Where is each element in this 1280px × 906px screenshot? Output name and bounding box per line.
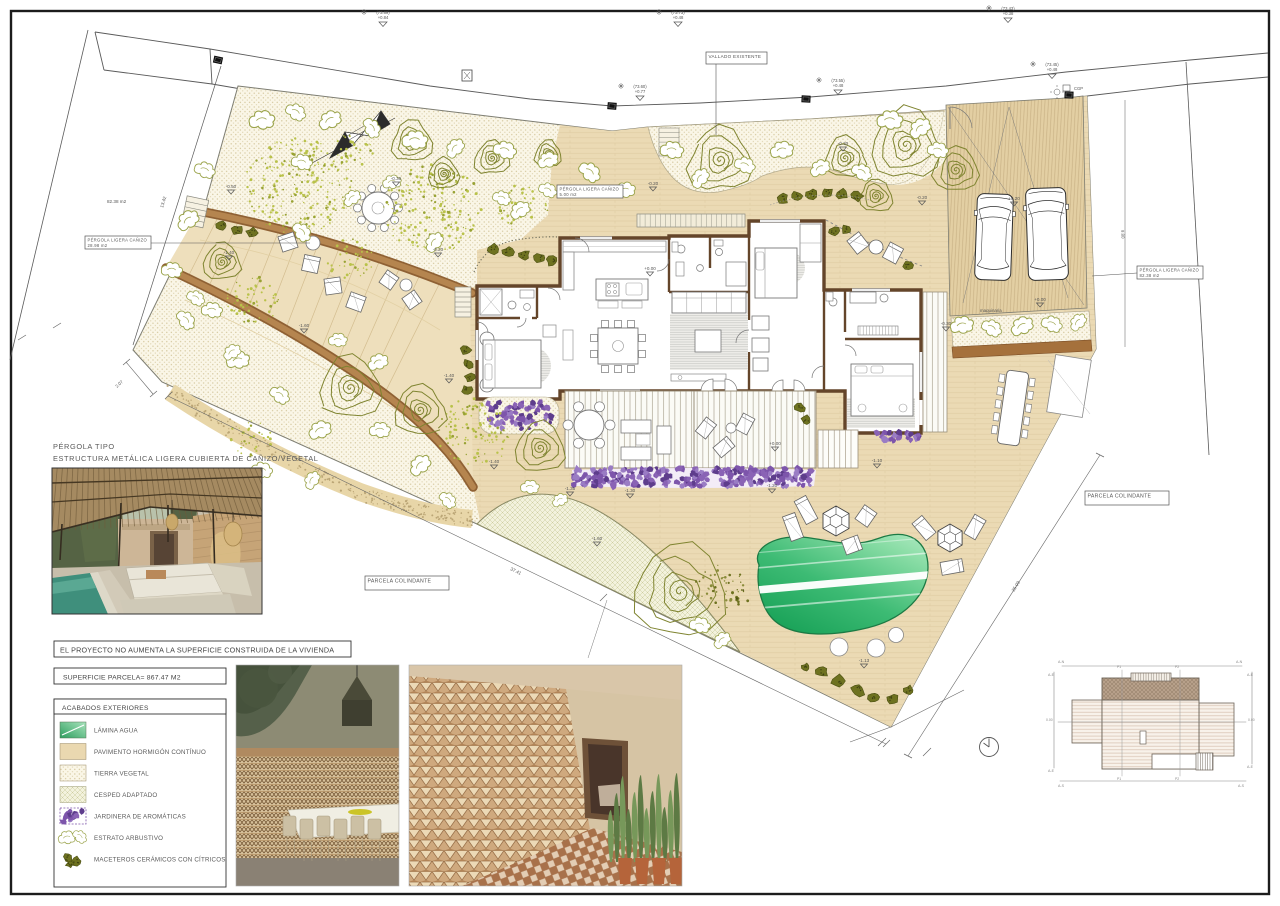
svg-text:+0.48: +0.48 — [833, 83, 844, 88]
svg-text:PÉRGOLA TIPO: PÉRGOLA TIPO — [53, 442, 115, 451]
svg-text:EL PROYECTO NO AUMENTA LA SUPE: EL PROYECTO NO AUMENTA LA SUPERFICIE CON… — [60, 646, 334, 655]
svg-text:ESTRATO ARBUSTIVO: ESTRATO ARBUSTIVO — [94, 835, 163, 842]
svg-text:-1.60: -1.60 — [592, 536, 603, 541]
svg-text:PARCELA COLINDANTE: PARCELA COLINDANTE — [1088, 494, 1152, 500]
svg-text:-1.40: -1.40 — [224, 250, 235, 255]
svg-text:-1.40: -1.40 — [444, 373, 455, 378]
svg-text:PÉRGOLA LIGERA CAÑIZO: PÉRGOLA LIGERA CAÑIZO — [560, 187, 620, 192]
svg-text:-0.50: -0.50 — [226, 184, 237, 189]
svg-text:A-N: A-N — [1058, 660, 1065, 664]
svg-text:SUPERFICIE PARCELA= 867.47 M2: SUPERFICIE PARCELA= 867.47 M2 — [63, 675, 181, 682]
svg-text:PÉRGOLA LIGERA CAÑIZO: PÉRGOLA LIGERA CAÑIZO — [1140, 268, 1200, 273]
svg-text:VALLADO EXISTENTE: VALLADO EXISTENTE — [709, 54, 762, 59]
svg-text:A-N: A-N — [1236, 660, 1243, 664]
svg-text:+0.84: +0.84 — [378, 15, 389, 20]
svg-text:P2: P2 — [1175, 777, 1179, 781]
svg-text:+0.77: +0.77 — [635, 89, 646, 94]
svg-text:-1.40: -1.40 — [489, 459, 500, 464]
svg-text:9.80: 9.80 — [1120, 230, 1125, 239]
svg-text:-1.10: -1.10 — [872, 458, 883, 463]
svg-text:PÉRGOLA LIGERA CAÑIZO: PÉRGOLA LIGERA CAÑIZO — [88, 238, 148, 243]
svg-text:+0.00: +0.00 — [769, 441, 781, 446]
svg-text:P1: P1 — [1117, 777, 1121, 781]
svg-text:CESPED ADAPTADO: CESPED ADAPTADO — [94, 792, 157, 799]
svg-text:P2: P2 — [1175, 665, 1179, 669]
svg-text:A-E: A-E — [1247, 765, 1254, 769]
svg-text:A-S: A-S — [1238, 784, 1245, 788]
svg-text:A-E: A-E — [1048, 769, 1055, 773]
svg-text:A-S: A-S — [1058, 784, 1065, 788]
svg-text:ACABADOS EXTERIORES: ACABADOS EXTERIORES — [62, 705, 149, 712]
svg-text:+0.00: +0.00 — [1034, 297, 1046, 302]
svg-text:CGP: CGP — [1074, 86, 1083, 91]
svg-text:+0.48: +0.48 — [673, 15, 684, 20]
svg-text:P1: P1 — [1117, 665, 1121, 669]
svg-text:JARDINERA DE AROMÁTICAS: JARDINERA DE AROMÁTICAS — [94, 814, 186, 821]
svg-text:82.38 m2: 82.38 m2 — [1140, 273, 1160, 278]
svg-text:-0.20: -0.20 — [648, 181, 659, 186]
svg-text:PAVIMENTO HORMIGÓN CONTÍNUO: PAVIMENTO HORMIGÓN CONTÍNUO — [94, 749, 206, 756]
svg-text:-1.20: -1.20 — [767, 483, 778, 488]
svg-text:+0.20: +0.20 — [1008, 196, 1020, 201]
svg-text:maquinaria: maquinaria — [980, 308, 1002, 313]
svg-text:-0.20: -0.20 — [433, 247, 444, 252]
svg-text:MACETEROS CERÁMICOS CON CÍTRIC: MACETEROS CERÁMICOS CON CÍTRICOS — [94, 857, 226, 864]
svg-text:+0.48: +0.48 — [1047, 67, 1058, 72]
svg-text:-1.30: -1.30 — [625, 488, 636, 493]
svg-text:-0.30: -0.30 — [838, 141, 849, 146]
svg-text:0.00: 0.00 — [1248, 718, 1255, 722]
svg-text:A-E: A-E — [1048, 673, 1055, 677]
svg-text:+0.00: +0.00 — [644, 266, 656, 271]
svg-text:28.98 m2: 28.98 m2 — [88, 243, 108, 248]
svg-text:-0.30: -0.30 — [941, 321, 952, 326]
svg-text:+0.38: +0.38 — [1003, 11, 1014, 16]
svg-text:-0.20: -0.20 — [917, 195, 928, 200]
svg-text:PARCELA COLINDANTE: PARCELA COLINDANTE — [368, 579, 432, 585]
svg-text:A-E: A-E — [1247, 673, 1254, 677]
svg-text:-1.35: -1.35 — [565, 486, 576, 491]
svg-text:-0.36: -0.36 — [391, 176, 402, 181]
svg-text:0.00: 0.00 — [1046, 718, 1053, 722]
svg-text:ESTRUCTURA METÁLICA LIGERA CUB: ESTRUCTURA METÁLICA LIGERA CUBIERTA DE C… — [53, 454, 318, 463]
svg-text:82.38 m2: 82.38 m2 — [107, 199, 127, 204]
svg-text:-1.13: -1.13 — [859, 658, 870, 663]
svg-text:LÁMINA AGUA: LÁMINA AGUA — [94, 728, 138, 735]
svg-text:5.00 m2: 5.00 m2 — [560, 192, 578, 197]
svg-text:TIERRA VEGETAL: TIERRA VEGETAL — [94, 771, 149, 778]
svg-text:-1.60: -1.60 — [299, 323, 310, 328]
